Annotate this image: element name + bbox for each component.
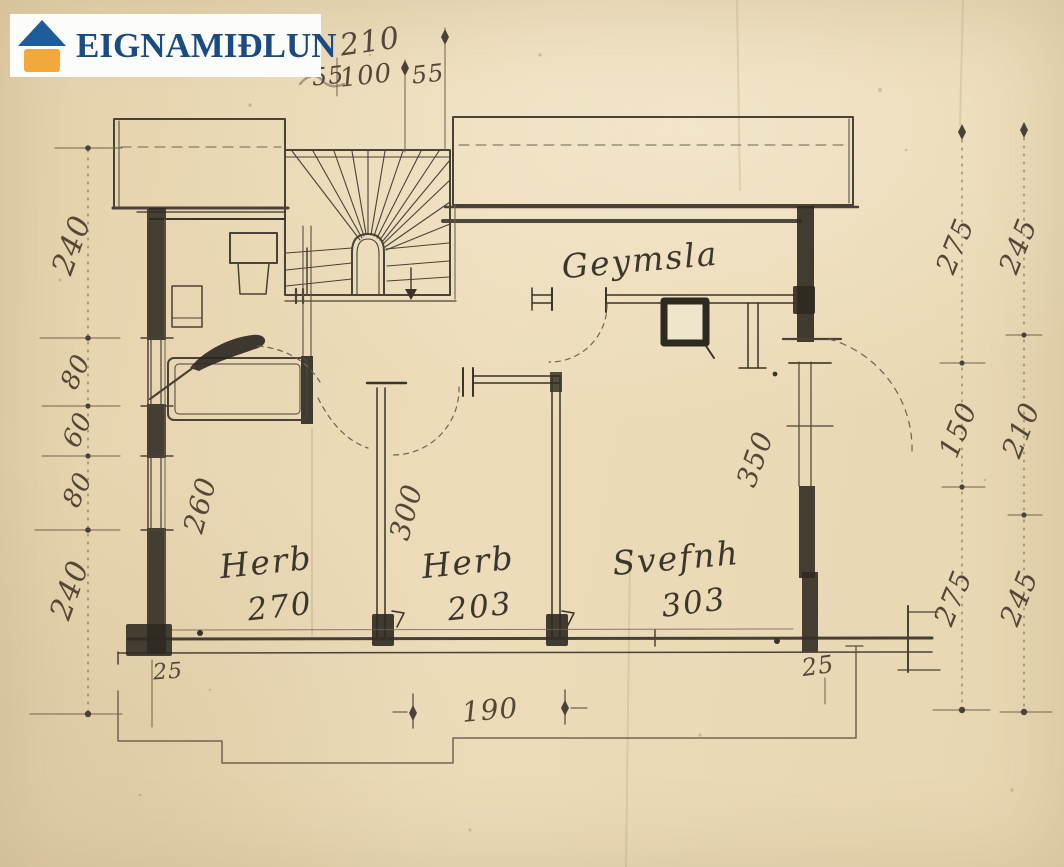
dim-bottom-right-25: 25 (800, 650, 836, 682)
roof-band-left (113, 119, 288, 208)
geymsla-wall (532, 288, 795, 376)
dim-top-100: 100 (338, 58, 393, 93)
bathtub (168, 358, 307, 420)
bathroom-door-arc (318, 398, 368, 448)
scanned-floorplan-page: 210 55 100 55 240 80 60 80 240 275 150 2… (0, 0, 1064, 867)
house-body (24, 49, 60, 72)
room-area-herb1: 270 (246, 586, 315, 629)
right-exterior-wall (783, 206, 912, 652)
room-area-herb2: 203 (446, 586, 515, 629)
left-exterior-wall (141, 208, 173, 654)
paper-specks (59, 53, 1014, 831)
dim-bottom-190: 190 (460, 691, 519, 729)
svefnh-door-arc (549, 304, 607, 362)
floorplan-drawing (0, 0, 1064, 867)
roof-band-right (443, 117, 858, 314)
chimney (664, 301, 706, 343)
agency-name: EIGNAMIÐLUN (76, 28, 337, 63)
herb2-door-arc (393, 387, 459, 455)
agency-logo: EIGNAMIÐLUN (10, 14, 321, 77)
ink-smear (190, 335, 265, 371)
dim-top-55-right: 55 (410, 58, 445, 89)
toilet (230, 233, 277, 263)
paper-creases (626, 0, 963, 867)
sink (172, 286, 202, 327)
balcony-door-arc (829, 339, 912, 452)
dim-bottom-left-25: 25 (152, 658, 184, 685)
roof-triangle (18, 20, 66, 46)
house-icon (18, 20, 66, 72)
